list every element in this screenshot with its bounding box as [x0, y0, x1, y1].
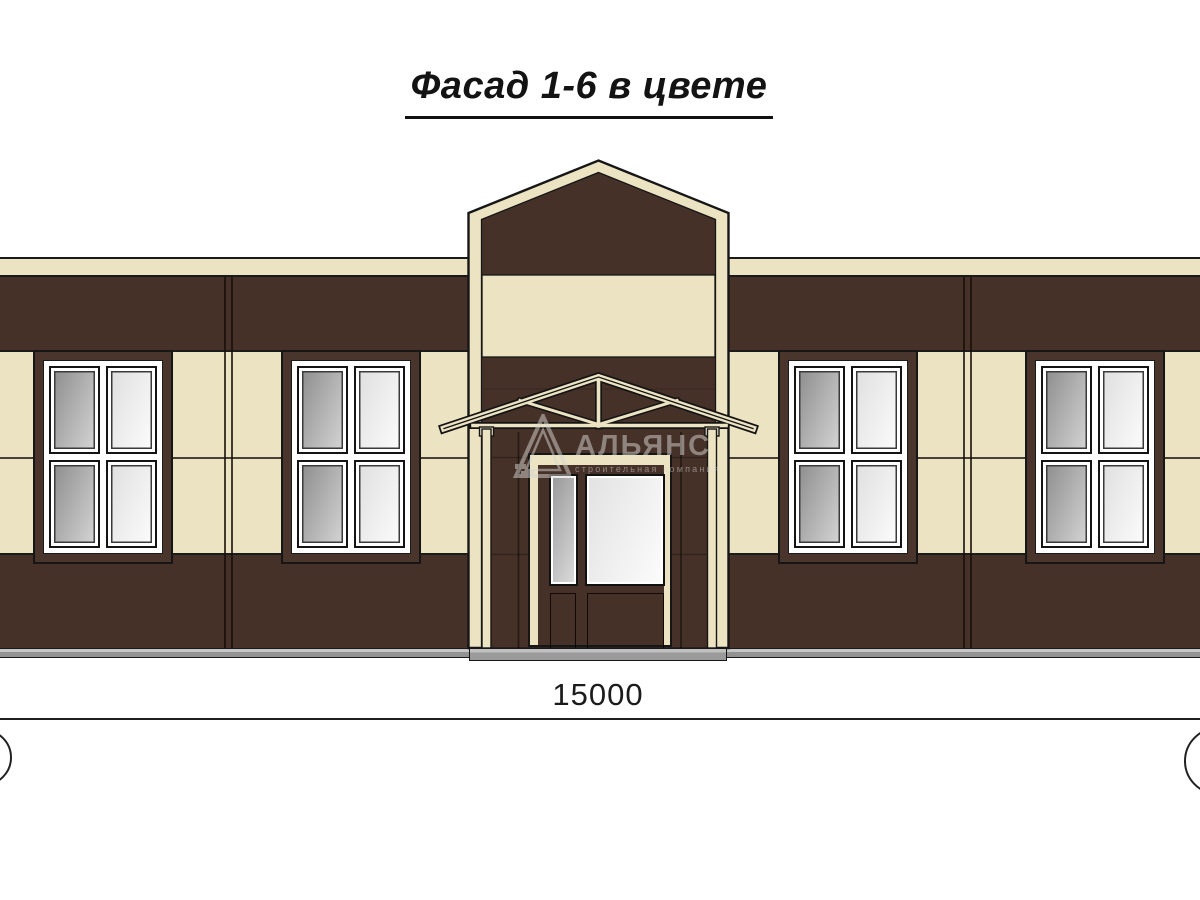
door-leaf-glass [585, 474, 665, 586]
door-opening [538, 465, 664, 646]
dimension-label: 15000 [0, 679, 1200, 710]
watermark: АЛЬЯНС строительная компания [505, 410, 715, 482]
watermark-name: АЛЬЯНС [575, 432, 711, 461]
door-lower-panel [550, 593, 576, 649]
door-sidelight-glass [549, 474, 578, 586]
watermark-tagline: строительная компания [575, 465, 721, 474]
door-lower-panel [587, 593, 664, 649]
elevation-drawing-sheet: { "title": { "text": "Фасад 1-6 в цвете"… [0, 0, 1200, 900]
entrance-step [469, 648, 727, 661]
dimension-line [0, 718, 1200, 720]
alliance-triangle-logo-icon [513, 414, 571, 480]
